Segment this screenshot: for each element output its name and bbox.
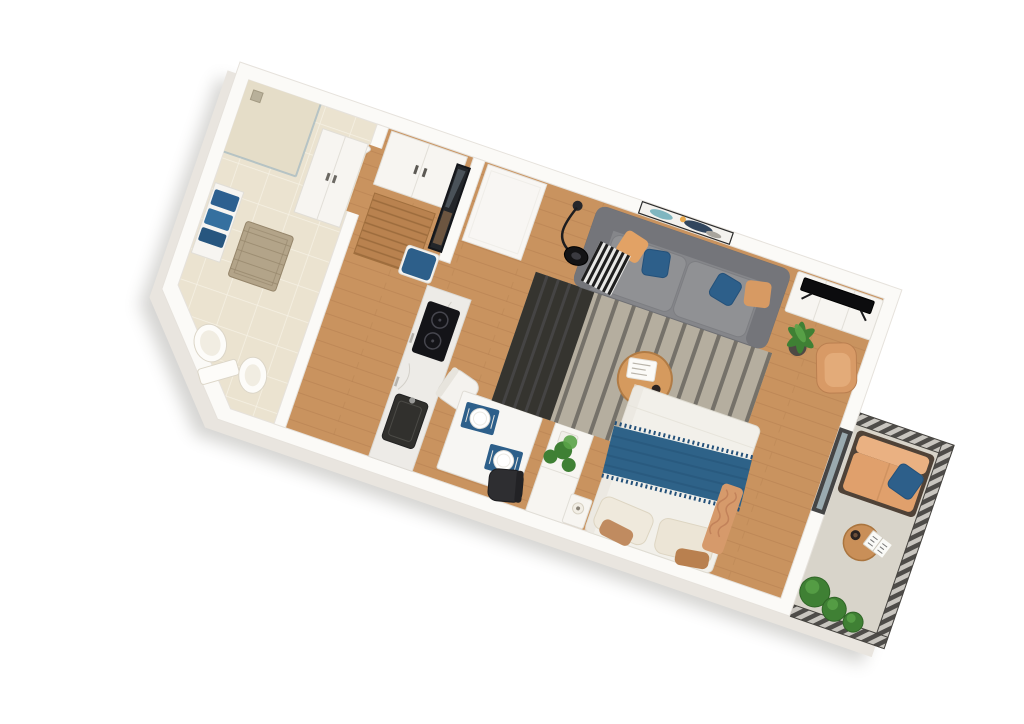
tan-armchair <box>816 343 857 394</box>
magazines <box>626 357 657 381</box>
floor-plan-render <box>0 0 1024 724</box>
blue-pillow <box>641 249 671 279</box>
floor-plan-canvas <box>0 0 1024 724</box>
orange-pillow <box>743 280 772 309</box>
bidet <box>238 357 267 393</box>
black-chair <box>487 468 524 503</box>
